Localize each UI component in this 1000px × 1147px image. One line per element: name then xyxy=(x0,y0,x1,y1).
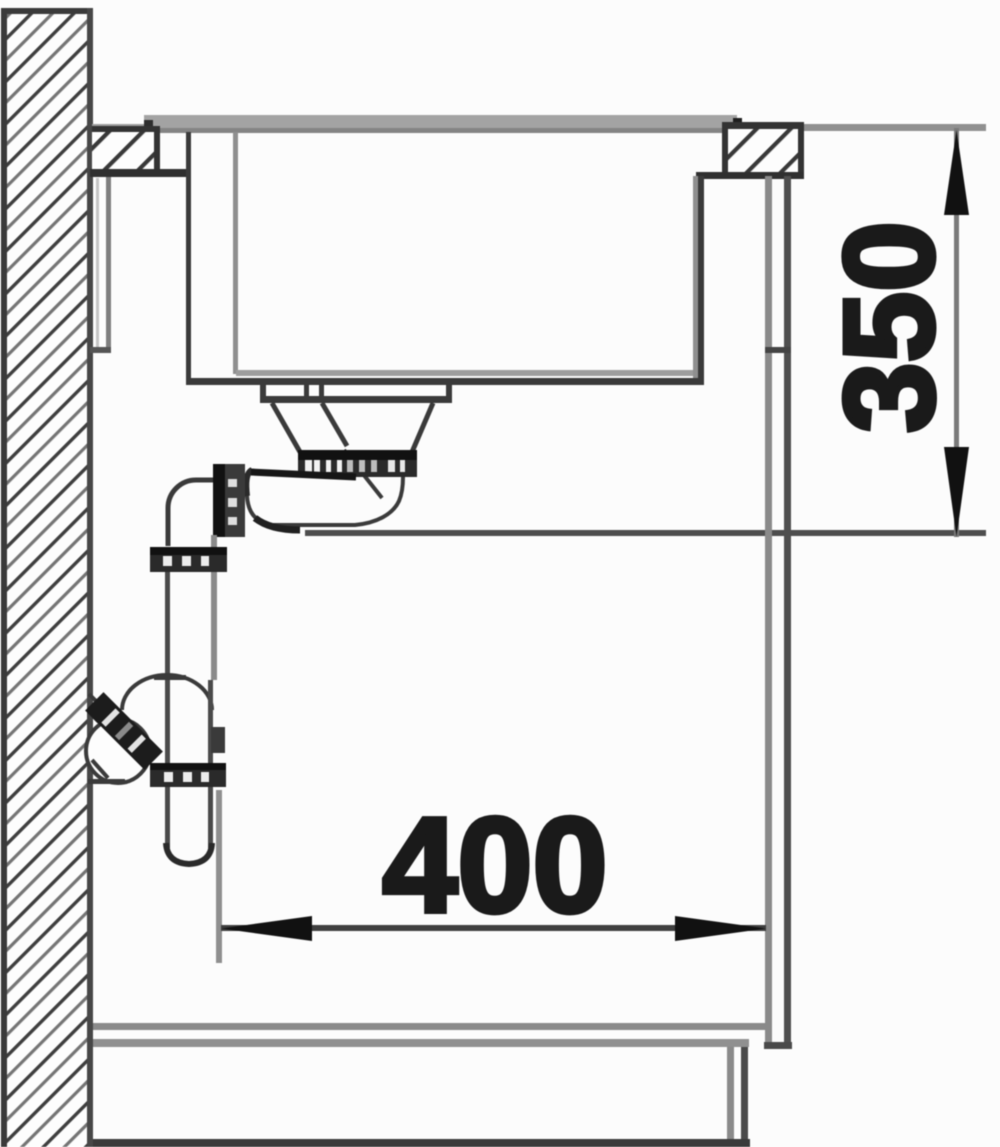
svg-text:350: 350 xyxy=(818,221,960,433)
svg-text:400: 400 xyxy=(382,790,607,941)
